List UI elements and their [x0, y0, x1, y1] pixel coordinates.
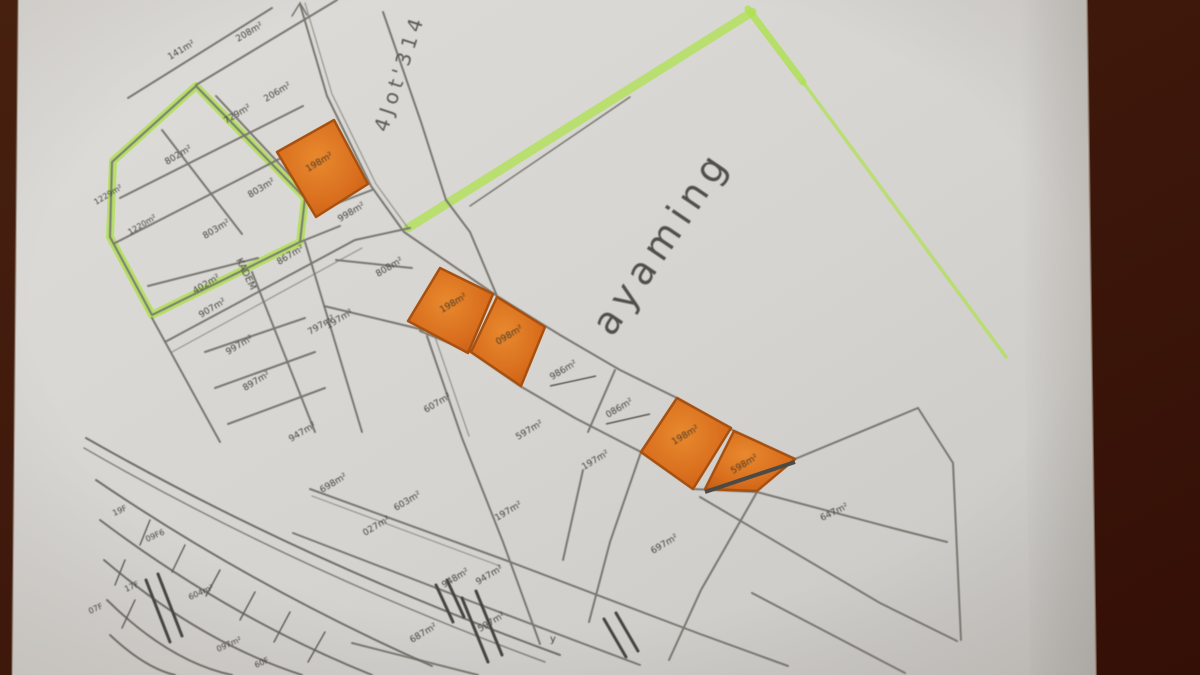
y-mark: y	[550, 634, 556, 645]
plot-map-sketch: 141m² 208m² 206m² 729m² 802m² 803m² 1229…	[0, 0, 1200, 675]
photo-of-hand-drawn-plot-map: 141m² 208m² 206m² 729m² 802m² 803m² 1229…	[0, 0, 1200, 675]
